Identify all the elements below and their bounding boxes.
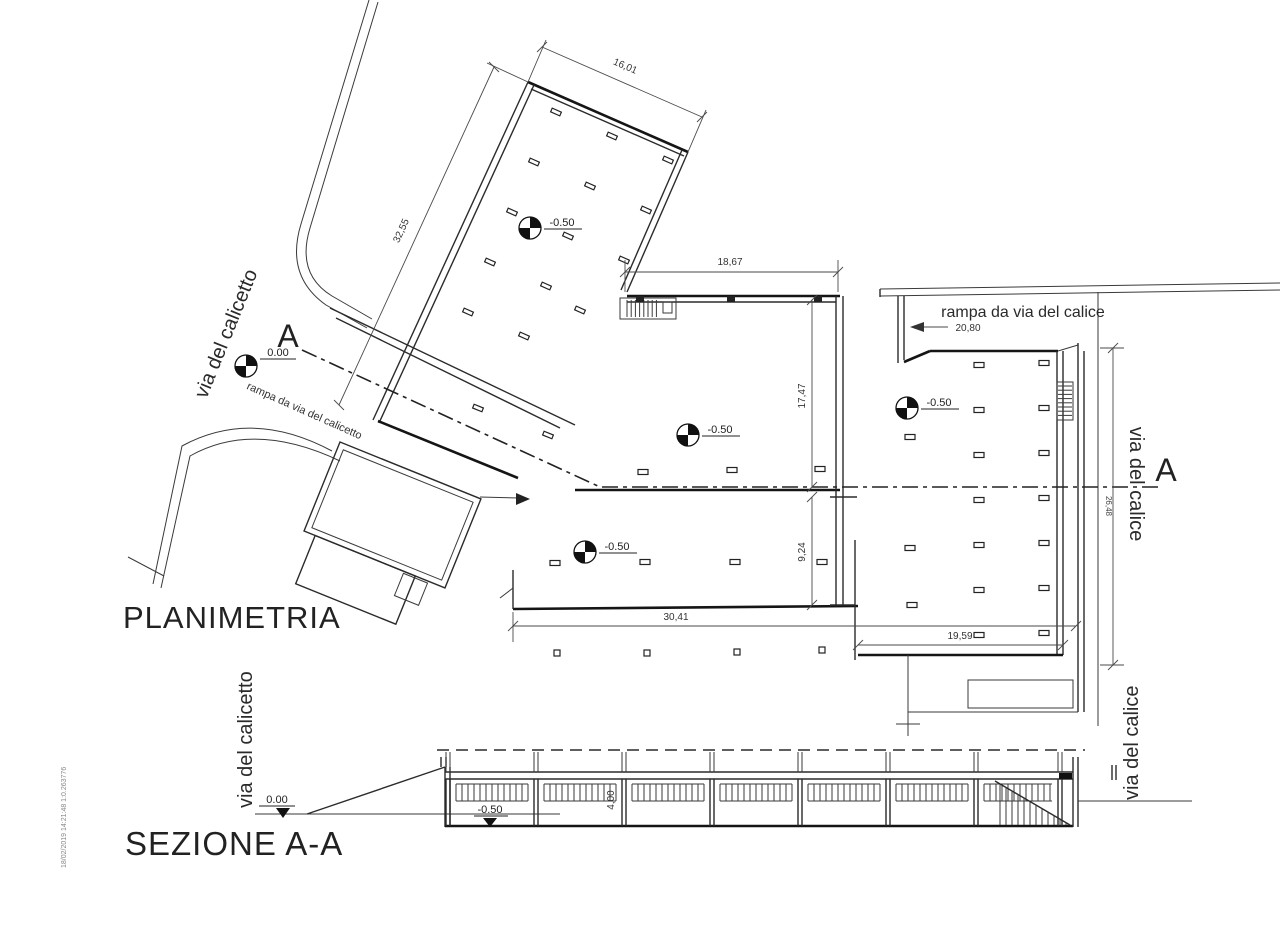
elevation-value: 0.00	[267, 347, 288, 359]
section-height-dim: 4,00	[606, 790, 617, 810]
column	[815, 467, 825, 472]
section-marker-a-right: A	[1155, 452, 1177, 488]
dim-value: 17,47	[797, 383, 808, 408]
column	[1039, 406, 1049, 411]
dim-value: 9,24	[797, 542, 808, 562]
column	[734, 649, 740, 655]
column	[1039, 541, 1049, 546]
elevation-value: 0.00	[266, 794, 287, 806]
column	[638, 470, 648, 475]
dim-value: 20,80	[955, 323, 980, 334]
ramp-label-calice: rampa da via del calice	[941, 304, 1105, 321]
column	[1039, 631, 1049, 636]
column	[727, 296, 735, 302]
elevation-value: -0.50	[604, 541, 629, 553]
column	[907, 603, 917, 608]
dim-value: 26,48	[1104, 496, 1113, 517]
street-label-calice-plan: via del calice	[1125, 427, 1147, 542]
column	[554, 650, 560, 656]
drawing-sheet: A A 0.00 -0.50 -0.50 -0.50 -0.50	[0, 0, 1280, 931]
column	[974, 543, 984, 548]
column	[730, 560, 740, 565]
column	[974, 588, 984, 593]
column	[974, 633, 984, 638]
plot-stamp: 18/02/2019 14:21:48 1:0.263776	[61, 767, 68, 868]
column	[1039, 496, 1049, 501]
column	[905, 435, 915, 440]
column	[1039, 586, 1049, 591]
column	[640, 560, 650, 565]
elevation-value: -0.50	[926, 397, 951, 409]
paper-background	[0, 0, 1280, 931]
column	[819, 647, 825, 653]
column	[974, 453, 984, 458]
column	[636, 296, 644, 302]
column	[974, 363, 984, 368]
column	[644, 650, 650, 656]
column	[905, 546, 915, 551]
drawing-canvas: A A 0.00 -0.50 -0.50 -0.50 -0.50	[0, 0, 1280, 931]
column	[974, 498, 984, 503]
dim-value: 18,67	[717, 257, 742, 268]
section-title: SEZIONE A-A	[125, 825, 343, 862]
beam-block	[1059, 773, 1072, 779]
elevation-value: -0.50	[707, 424, 732, 436]
street-label-calice-section: via del calice	[1121, 685, 1143, 800]
column	[974, 408, 984, 413]
elevation-value: -0.50	[549, 217, 574, 229]
column	[817, 560, 827, 565]
dim-value: 30,41	[663, 612, 688, 623]
column	[1039, 451, 1049, 456]
elevation-value: -0.50	[477, 804, 502, 816]
column	[727, 468, 737, 473]
street-label-calicetto-section: via del calicetto	[235, 671, 257, 808]
dim-value: 19,59	[947, 631, 972, 642]
column	[550, 561, 560, 566]
plan-title: PLANIMETRIA	[123, 600, 341, 635]
column	[1039, 361, 1049, 366]
